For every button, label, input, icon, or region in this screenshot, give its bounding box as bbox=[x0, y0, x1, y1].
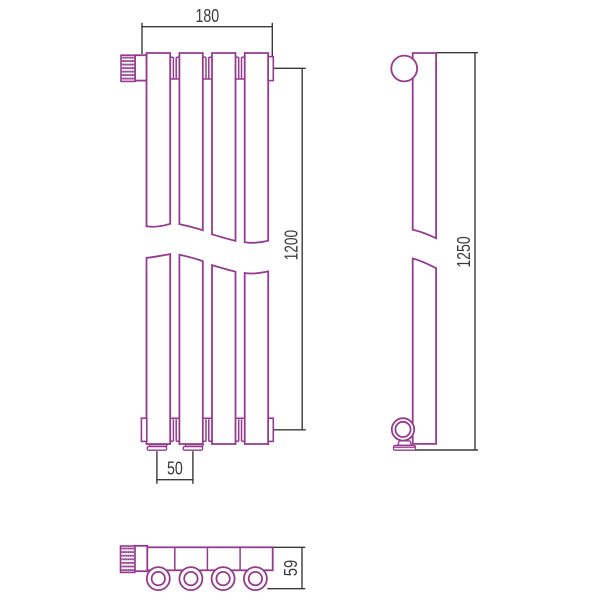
svg-text:59: 59 bbox=[280, 560, 301, 577]
svg-text:50: 50 bbox=[167, 458, 183, 479]
svg-text:180: 180 bbox=[196, 5, 220, 26]
svg-text:1250: 1250 bbox=[453, 236, 474, 267]
svg-text:1200: 1200 bbox=[280, 230, 301, 260]
